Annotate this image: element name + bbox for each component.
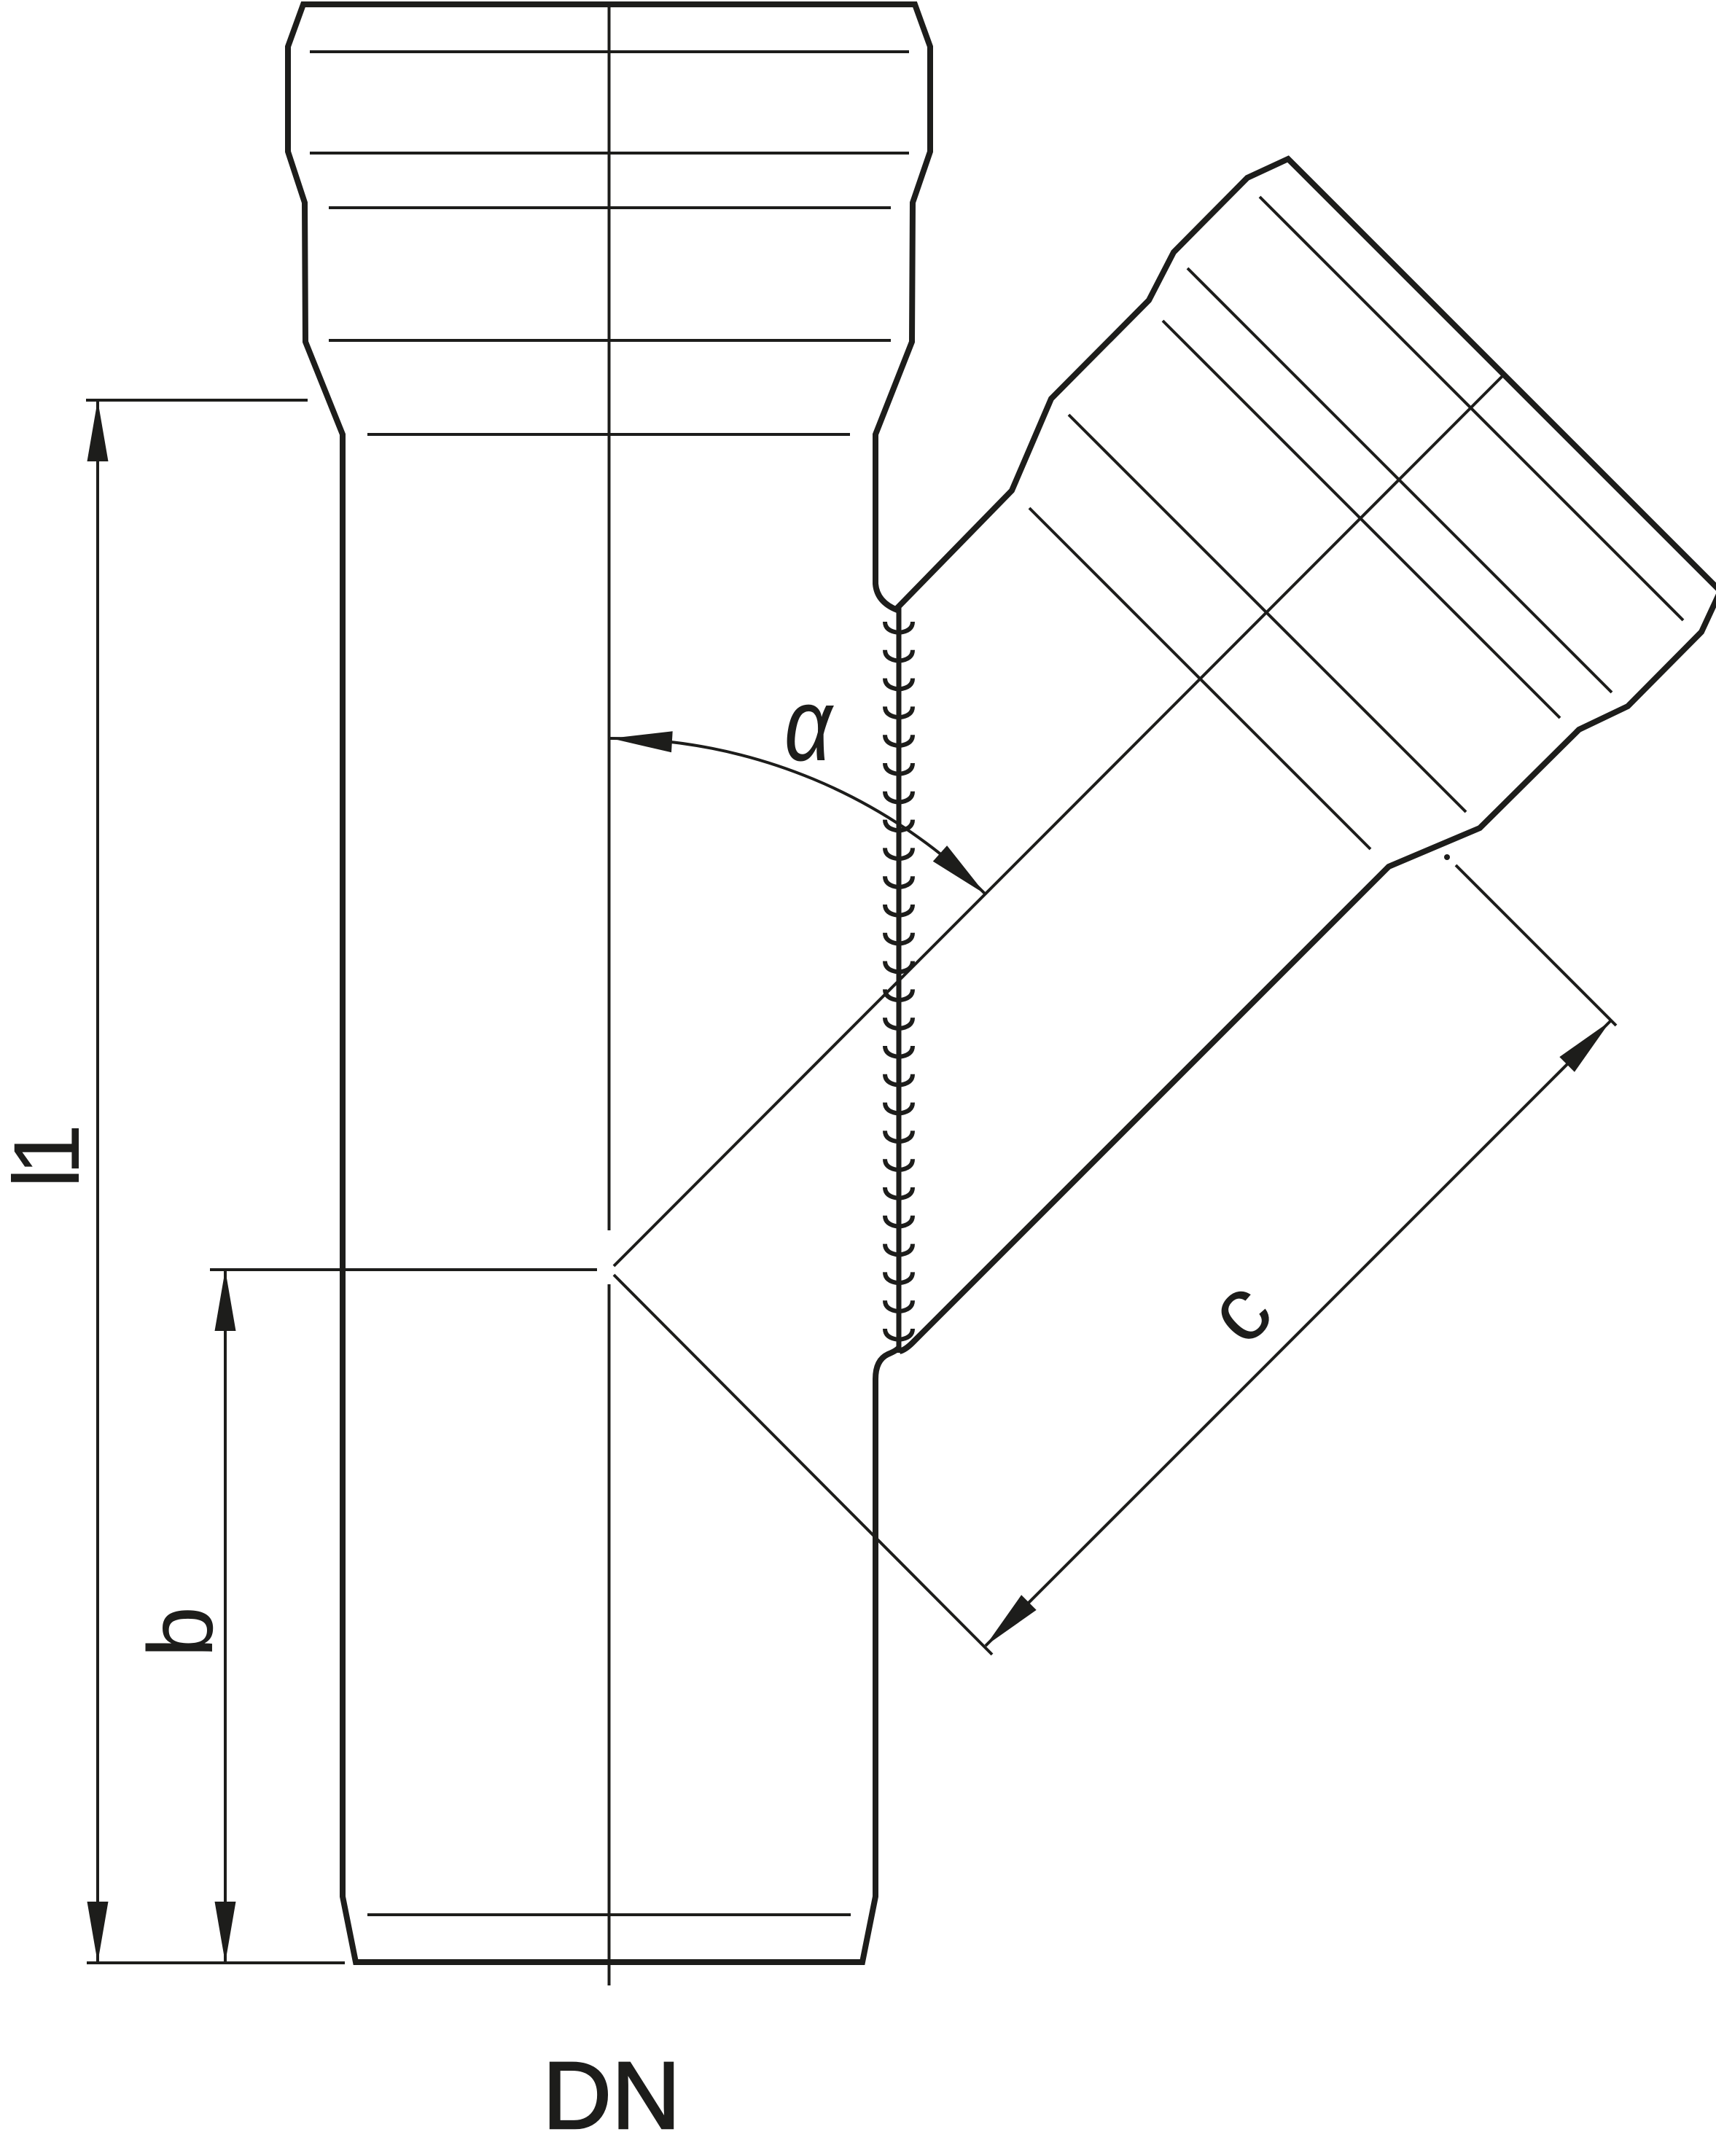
svg-text:DN: DN	[542, 2042, 680, 2149]
svg-text:l1: l1	[0, 1128, 99, 1188]
svg-text:b: b	[129, 1606, 232, 1657]
svg-text:α: α	[784, 668, 835, 783]
